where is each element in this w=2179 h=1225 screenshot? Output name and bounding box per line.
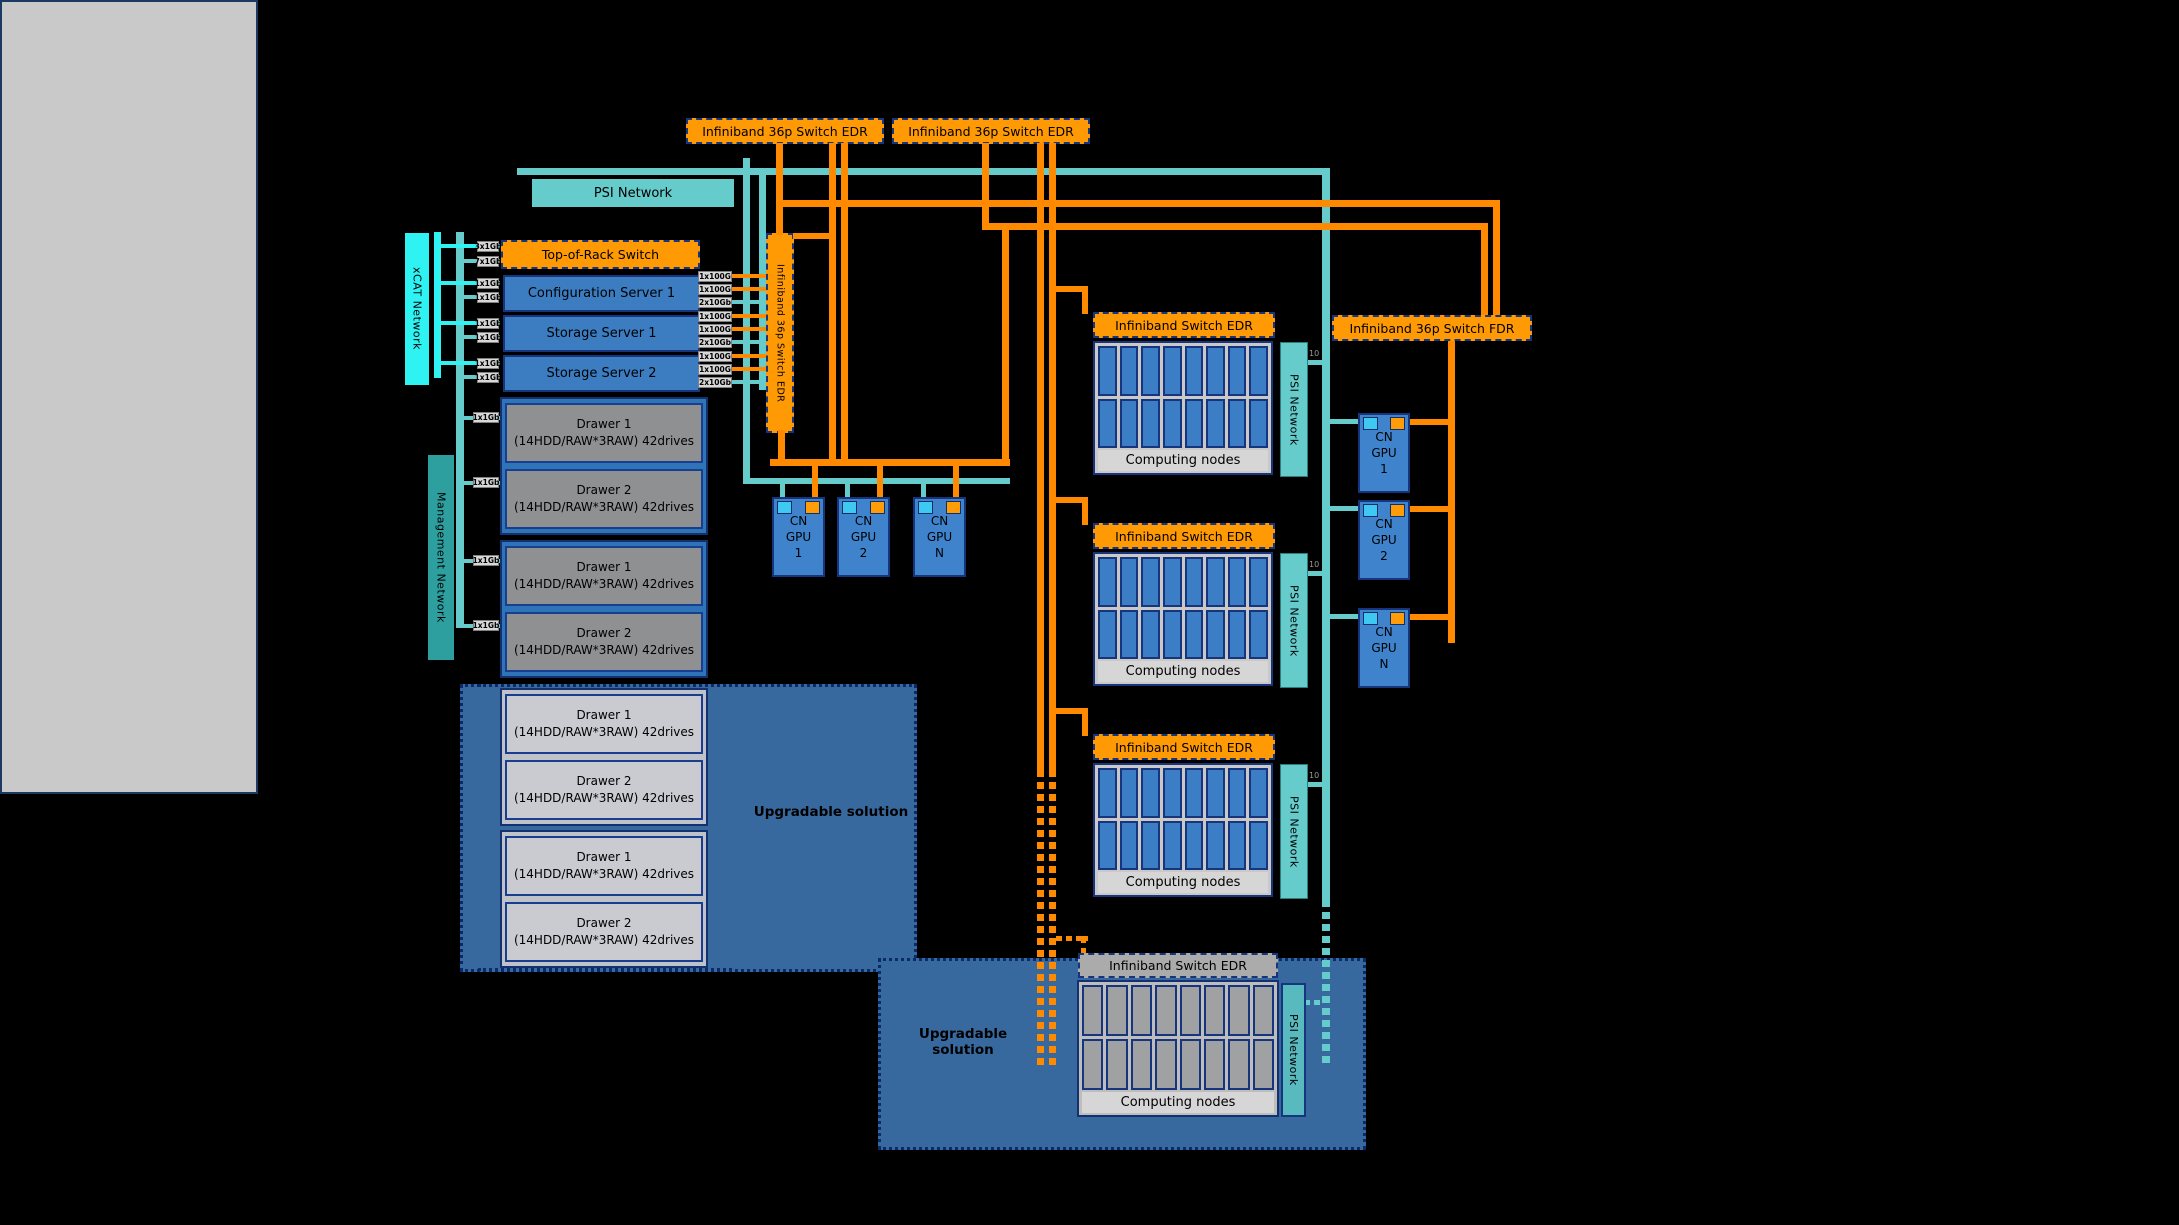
psi-port-chip <box>1363 612 1378 625</box>
compute-node-cell <box>1141 768 1160 818</box>
gpu-label-line: N <box>1380 656 1389 672</box>
gpu-label-line: 1 <box>795 545 803 561</box>
teal-dashed-stub <box>1304 1000 1322 1005</box>
infiniband-switch-edr: Infiniband Switch EDR <box>1093 734 1275 760</box>
compute-node-cell <box>1098 821 1117 871</box>
compute-node-cell <box>1228 346 1247 396</box>
storage-drawer: Drawer 2(14HDD/RAW*3RAW) 42drives <box>505 902 703 962</box>
upgradable-storage-label: Upgradable solution <box>751 804 911 820</box>
compute-node-cell <box>1206 346 1225 396</box>
psi-uplink-stub <box>1308 360 1322 365</box>
compute-node-cell <box>1098 557 1117 607</box>
port-label: 1x1Gb <box>473 620 499 631</box>
storage-server-1: Storage Server 1 <box>503 315 700 352</box>
ib-port-chip <box>870 501 885 514</box>
compute-node-cell <box>1185 557 1204 607</box>
compute-node-cell <box>1155 985 1176 1036</box>
infiniband-top-switch-1: Infiniband 36p Switch EDR <box>686 118 884 144</box>
gpu-label-line: GPU <box>927 529 952 545</box>
computing-nodes-block-future: Computing nodes <box>1077 980 1279 1117</box>
compute-node-cell <box>1106 1039 1127 1090</box>
port-label: 1x1Gb <box>477 278 499 289</box>
gpu-label-line: N <box>935 545 944 561</box>
port-label: 1x1Gb <box>473 555 499 566</box>
drawer-name: Drawer 1 <box>576 707 631 724</box>
compute-node-cell <box>1228 768 1247 818</box>
psi-uplink-stub <box>1308 782 1322 787</box>
gpu-label-line: CN <box>1375 516 1392 532</box>
infiniband-switch-edr: Infiniband Switch EDR <box>1093 523 1275 549</box>
compute-node-cell <box>1228 985 1249 1036</box>
compute-node-cell <box>1120 399 1139 449</box>
uplink-label: 10 <box>1309 560 1319 569</box>
compute-node-cell <box>1120 821 1139 871</box>
gpu-label-line: CN <box>1375 624 1392 640</box>
uplink-label: 10 <box>1309 349 1319 358</box>
gpu-label-line: CN <box>855 513 872 529</box>
port-label: 1x100G <box>698 271 732 282</box>
psi-port-chip <box>1363 417 1378 430</box>
storage-drawer: Drawer 2(14HDD/RAW*3RAW) 42drives <box>505 469 703 529</box>
compute-node-cell <box>1163 346 1182 396</box>
ib-port-chip <box>1390 612 1405 625</box>
gpu-label-line: GPU <box>851 529 876 545</box>
compute-node-cell <box>1163 610 1182 660</box>
top-of-rack-switch: Top-of-Rack Switch <box>501 240 700 269</box>
psi-network-bar: PSI Network <box>1280 342 1308 477</box>
orange-uplink-stub <box>732 354 766 358</box>
cn-gpu-node: CNGPU1 <box>772 497 825 577</box>
drawer-spec: (14HDD/RAW*3RAW) 42drives <box>514 932 694 949</box>
drawer-spec: (14HDD/RAW*3RAW) 42drives <box>514 576 694 593</box>
cn-gpu-node: CNGPU2 <box>837 497 890 577</box>
gpu-label-line: GPU <box>1371 532 1396 548</box>
compute-node-cell <box>1253 1039 1274 1090</box>
ib-port-chip <box>1390 417 1405 430</box>
orange-uplink-stub <box>732 314 766 318</box>
orange-stem <box>812 466 818 499</box>
vswitch-bus-connector <box>778 430 785 461</box>
drawer-spec: (14HDD/RAW*3RAW) 42drives <box>514 866 694 883</box>
storage-drawer: Drawer 1(14HDD/RAW*3RAW) 42drives <box>505 836 703 896</box>
drawer-name: Drawer 1 <box>576 849 631 866</box>
compute-node-cell <box>1082 985 1103 1036</box>
infiniband-switch-edr-future: Infiniband Switch EDR <box>1078 953 1278 978</box>
mgmt-vertical-line <box>456 232 464 628</box>
port-label: 1x100G <box>698 311 732 322</box>
compute-node-cell <box>1185 821 1204 871</box>
port-label: 1x100G <box>698 351 732 362</box>
compute-node-cell <box>1228 821 1247 871</box>
compute-node-cell <box>1163 557 1182 607</box>
drawer-name: Drawer 1 <box>576 559 631 576</box>
compute-node-cell <box>1131 985 1152 1036</box>
cn-gpu-node: CNGPUN <box>913 497 966 577</box>
orange-stub <box>1410 506 1448 512</box>
orange-uplink-stub <box>732 287 766 291</box>
compute-node-cell <box>1249 557 1268 607</box>
compute-node-cell <box>1228 399 1247 449</box>
compute-node-cell <box>1249 610 1268 660</box>
gpu-label-line: 2 <box>860 545 868 561</box>
drawer-spec: (14HDD/RAW*3RAW) 42drives <box>514 642 694 659</box>
orange-line <box>982 223 1488 230</box>
teal-uplink-stub <box>732 380 766 384</box>
orange-stub <box>1082 497 1088 525</box>
drawer-name: Drawer 2 <box>576 482 631 499</box>
uplink-label: 10 <box>1309 771 1319 780</box>
configuration-server: Configuration Server 1 <box>503 275 700 312</box>
storage-server-2: Storage Server 2 <box>503 355 700 392</box>
gpu-label-line: GPU <box>786 529 811 545</box>
orange-stub <box>1082 708 1088 736</box>
cn-gpu-node: CNGPU2 <box>1358 500 1410 580</box>
compute-node-cell <box>1180 985 1201 1036</box>
compute-node-cell <box>1228 557 1247 607</box>
port-label: 1x1Gb <box>473 412 499 423</box>
drawer-name: Drawer 2 <box>576 773 631 790</box>
compute-node-cell <box>1249 768 1268 818</box>
drawer-spec: (14HDD/RAW*3RAW) 42drives <box>514 433 694 450</box>
computing-nodes-label: Computing nodes <box>1098 661 1268 682</box>
teal-stub <box>1330 614 1358 619</box>
teal-uplink-stub <box>732 300 766 304</box>
computing-nodes-block: Computing nodes <box>1093 763 1273 897</box>
orange-uplink-stub <box>732 367 766 371</box>
port-label: 2x10Gb <box>698 377 732 388</box>
orange-stub <box>1410 614 1448 620</box>
xcat-vertical-line <box>434 232 441 378</box>
psi-port-chip <box>777 501 792 514</box>
orange-line <box>1002 225 1009 466</box>
hpc-cluster-diagram: GPFS Top-of-Rack Switch Configuration Se… <box>0 0 2179 1225</box>
orange-line <box>1037 143 1044 770</box>
orange-line <box>841 143 848 466</box>
orange-dashed-line <box>1037 770 1044 1067</box>
compute-node-cell <box>1249 399 1268 449</box>
compute-node-cell <box>1206 557 1225 607</box>
port-label: 1x100G <box>698 364 732 375</box>
computing-nodes-label: Computing nodes <box>1098 872 1268 893</box>
drawer-name: Drawer 1 <box>576 416 631 433</box>
gpu-label-line: CN <box>931 513 948 529</box>
compute-node-cell <box>1141 346 1160 396</box>
psi-port-chip <box>918 501 933 514</box>
orange-stub <box>793 233 836 239</box>
psi-uplink-stub <box>1308 571 1322 576</box>
compute-node-cell <box>1249 346 1268 396</box>
compute-node-cell <box>1180 1039 1201 1090</box>
port-label: 1x1Gb <box>477 318 499 329</box>
compute-node-cell <box>1141 399 1160 449</box>
compute-node-cell <box>1163 399 1182 449</box>
compute-node-cell <box>1141 610 1160 660</box>
compute-node-cell <box>1206 399 1225 449</box>
compute-node-cell <box>1204 985 1225 1036</box>
compute-node-cell <box>1098 399 1117 449</box>
infiniband-vertical-switch: Infiniband 36p Switch EDR <box>766 233 794 433</box>
drawer-spec: (14HDD/RAW*3RAW) 42drives <box>514 724 694 741</box>
node-grid <box>1098 768 1268 870</box>
port-label: 3x1Gb <box>477 241 499 252</box>
orange-line <box>829 143 836 466</box>
port-label: 1x1Gb <box>473 477 499 488</box>
port-label: 1x1Gb <box>477 372 499 383</box>
computing-nodes-label: Computing nodes <box>1082 1092 1274 1113</box>
compute-node-cell <box>1253 985 1274 1036</box>
compute-node-cell <box>1120 610 1139 660</box>
orange-stub <box>1082 286 1088 314</box>
drawer-spec: (14HDD/RAW*3RAW) 42drives <box>514 499 694 516</box>
compute-node-cell <box>1206 610 1225 660</box>
port-label: 1x1Gb <box>477 292 499 303</box>
psi-port-chip <box>1363 504 1378 517</box>
psi-port-chip <box>842 501 857 514</box>
compute-node-cell <box>1204 1039 1225 1090</box>
orange-line <box>1049 143 1056 770</box>
port-label: 1x100G <box>698 324 732 335</box>
storage-drawer: Drawer 2(14HDD/RAW*3RAW) 42drives <box>505 612 703 672</box>
orange-line <box>776 200 1500 207</box>
gpu-label-line: CN <box>1375 429 1392 445</box>
teal-dashed-line <box>1322 900 1330 1067</box>
teal-uplink-stub <box>732 340 766 344</box>
compute-node-cell <box>1185 399 1204 449</box>
compute-node-cell <box>1185 768 1204 818</box>
storage-drawer: Drawer 1(14HDD/RAW*3RAW) 42drives <box>505 546 703 606</box>
gpu-label-line: CN <box>790 513 807 529</box>
compute-node-cell <box>1228 610 1247 660</box>
compute-node-cell <box>1082 1039 1103 1090</box>
gpu-label-line: GPU <box>1371 640 1396 656</box>
teal-line <box>743 158 750 484</box>
compute-node-cell <box>1106 985 1127 1036</box>
compute-node-cell <box>1228 1039 1249 1090</box>
orange-stub <box>1410 419 1448 425</box>
cn-gpu-node: CNGPU1 <box>1358 413 1410 493</box>
computing-nodes-block: Computing nodes <box>1093 552 1273 686</box>
management-network-bar: Management Network <box>428 455 454 660</box>
teal-stub <box>1330 506 1358 511</box>
compute-node-cell <box>1206 821 1225 871</box>
upgradable-boundary <box>478 968 732 971</box>
storage-drawer: Drawer 1(14HDD/RAW*3RAW) 42drives <box>505 403 703 463</box>
ib-port-chip <box>805 501 820 514</box>
computing-nodes-label: Computing nodes <box>1098 450 1268 471</box>
teal-line <box>1322 168 1330 900</box>
orange-line <box>1493 200 1500 315</box>
psi-network-bar-future: PSI Network <box>1281 983 1306 1117</box>
infiniband-top-switch-2: Infiniband 36p Switch EDR <box>892 118 1090 144</box>
port-label: 2x10Gb <box>698 337 732 348</box>
compute-node-cell <box>1120 768 1139 818</box>
compute-node-cell <box>1249 821 1268 871</box>
node-grid <box>1098 346 1268 448</box>
drawer-name: Drawer 2 <box>576 915 631 932</box>
storage-drawer: Drawer 2(14HDD/RAW*3RAW) 42drives <box>505 760 703 820</box>
storage-rack <box>0 0 258 794</box>
orange-uplink-stub <box>732 327 766 331</box>
teal-stub <box>1330 419 1358 424</box>
compute-node-cell <box>1120 557 1139 607</box>
compute-node-cell <box>1141 821 1160 871</box>
drawer-spec: (14HDD/RAW*3RAW) 42drives <box>514 790 694 807</box>
orange-stem <box>953 466 959 499</box>
orange-line <box>776 143 783 235</box>
compute-node-cell <box>1098 768 1117 818</box>
compute-node-cell <box>1185 346 1204 396</box>
upgradable-compute-label: Upgradable solution <box>888 1026 1038 1058</box>
port-label: 1x1Gb <box>477 358 499 369</box>
orange-stem <box>877 466 883 499</box>
infiniband-fdr-switch: Infiniband 36p Switch FDR <box>1332 315 1532 341</box>
compute-node-cell <box>1163 768 1182 818</box>
orange-uplink-stub <box>732 274 766 278</box>
port-label: 1x1Gb <box>477 332 499 343</box>
gpu-ib-bus <box>770 459 1010 466</box>
infiniband-switch-edr: Infiniband Switch EDR <box>1093 312 1275 338</box>
cn-gpu-node: CNGPUN <box>1358 608 1410 688</box>
compute-node-cell <box>1155 1039 1176 1090</box>
orange-dashed-line <box>1049 770 1056 1067</box>
psi-network-bar: PSI Network <box>1280 764 1308 899</box>
compute-node-cell <box>1185 610 1204 660</box>
compute-node-cell <box>1098 610 1117 660</box>
compute-node-cell <box>1141 557 1160 607</box>
gpu-label-line: 2 <box>1380 548 1388 564</box>
drawer-name: Drawer 2 <box>576 625 631 642</box>
psi-network-bar: PSI Network <box>1280 553 1308 688</box>
compute-node-cell <box>1098 346 1117 396</box>
port-label: 2x10Gb <box>698 297 732 308</box>
psi-network-top-box: PSI Network <box>532 179 734 207</box>
compute-node-cell <box>1120 346 1139 396</box>
storage-drawer: Drawer 1(14HDD/RAW*3RAW) 42drives <box>505 694 703 754</box>
compute-node-cell <box>1131 1039 1152 1090</box>
gpfs-label: GPFS <box>478 985 732 1013</box>
fdr-vertical-line <box>1448 341 1455 643</box>
gpu-label-line: GPU <box>1371 445 1396 461</box>
port-label: 7x1Gb <box>477 256 499 267</box>
compute-node-cell <box>1206 768 1225 818</box>
gpu-label-line: 1 <box>1380 461 1388 477</box>
ib-port-chip <box>1390 504 1405 517</box>
orange-line <box>982 143 989 230</box>
upgradable-boundary <box>478 684 732 687</box>
ib-port-chip <box>946 501 961 514</box>
node-grid <box>1098 557 1268 659</box>
orange-line <box>1481 223 1488 315</box>
port-label: 1x100G <box>698 284 732 295</box>
computing-nodes-block: Computing nodes <box>1093 341 1273 475</box>
compute-node-cell <box>1163 821 1182 871</box>
xcat-network-bar: xCAT Network <box>405 233 429 385</box>
node-grid <box>1082 985 1274 1090</box>
teal-line <box>517 168 1330 175</box>
